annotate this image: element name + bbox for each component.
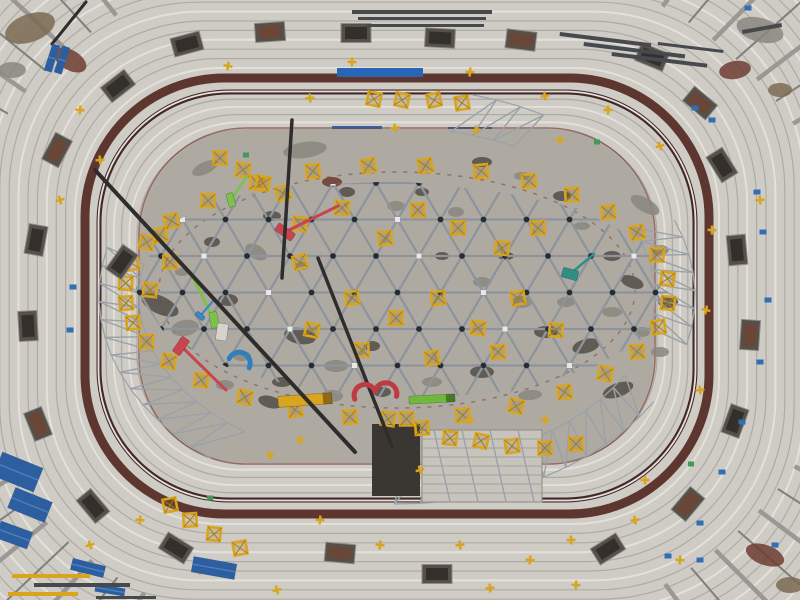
shoring-tower — [237, 390, 252, 405]
frame-node — [288, 327, 293, 332]
ground-patch — [574, 222, 590, 230]
shoring-tower — [292, 254, 307, 269]
frame-node — [481, 290, 486, 295]
shoring-tower — [139, 235, 154, 250]
stadium-aerial-photo — [0, 0, 800, 600]
shoring-tower — [183, 513, 197, 527]
vomitory-opening — [726, 234, 748, 266]
frame-node — [438, 217, 444, 223]
blue-fixture — [665, 554, 672, 559]
frame-node — [503, 327, 508, 332]
shoring-tower — [378, 231, 392, 245]
frame-node — [309, 290, 315, 296]
blue-fixture — [697, 521, 704, 526]
frame-node — [459, 326, 465, 332]
frame-node — [395, 217, 400, 222]
blue-banner — [337, 68, 423, 77]
shoring-tower — [143, 283, 157, 297]
shoring-tower — [119, 296, 133, 310]
steel-beam-bundle — [366, 24, 484, 27]
ground-patch — [448, 207, 464, 217]
shoring-tower — [549, 323, 563, 337]
shoring-tower — [495, 241, 510, 256]
shoring-tower — [411, 203, 424, 216]
shoring-tower — [201, 194, 215, 208]
vomitory-opening — [18, 311, 39, 342]
shoring-tower — [304, 322, 319, 337]
frame-node — [373, 253, 379, 259]
shoring-tower — [343, 410, 357, 424]
green-fixture — [243, 153, 249, 158]
shoring-tower — [425, 351, 440, 366]
blue-fixture — [772, 543, 779, 548]
shoring-tower — [660, 271, 675, 286]
shoring-tower — [491, 345, 505, 359]
shoring-tower — [538, 441, 551, 454]
long-bar — [8, 592, 78, 596]
frame-node — [481, 363, 487, 369]
frame-node — [373, 326, 379, 332]
shoring-tower — [569, 437, 582, 450]
shoring-tower — [431, 291, 445, 305]
shoring-tower — [400, 412, 413, 425]
shoring-tower — [522, 174, 536, 188]
shoring-tower — [471, 321, 486, 336]
blue-fixture — [70, 285, 77, 290]
frame-node — [653, 290, 659, 296]
shoring-tower — [194, 373, 209, 388]
vomitory-opening — [254, 21, 285, 42]
frame-node — [588, 326, 594, 332]
frame-node — [266, 290, 271, 295]
frame-node — [567, 217, 573, 223]
shoring-tower — [126, 316, 140, 330]
frame-node — [180, 290, 186, 296]
frame-node — [223, 217, 229, 223]
shoring-tower — [531, 221, 545, 235]
ground-patch — [602, 307, 622, 317]
shoring-tower — [236, 163, 250, 177]
shoring-tower — [505, 439, 520, 454]
frame-node — [352, 363, 357, 368]
shoring-tower — [650, 248, 663, 261]
shoring-tower — [366, 91, 381, 106]
shoring-tower — [629, 225, 644, 240]
ground-patch — [651, 347, 669, 357]
shoring-tower — [394, 92, 409, 107]
long-bar — [12, 574, 90, 578]
field-slab — [140, 129, 654, 463]
blue-fixture — [745, 6, 752, 11]
frame-node — [524, 217, 530, 223]
vomitory-opening — [425, 28, 456, 49]
frame-node — [545, 253, 551, 259]
shoring-tower — [474, 164, 488, 178]
frame-node — [567, 363, 572, 368]
shoring-tower — [361, 158, 376, 173]
support-truck — [215, 323, 228, 341]
frame-node — [330, 326, 336, 332]
blue-fixture — [757, 360, 764, 365]
vomitory-opening — [505, 29, 537, 52]
frame-node — [201, 326, 207, 332]
shoring-tower — [443, 431, 457, 445]
frame-node — [330, 253, 336, 259]
shoring-tower — [415, 421, 429, 435]
long-bar — [96, 596, 156, 599]
shoring-tower — [306, 164, 320, 178]
tunnel-dark-pit — [372, 424, 420, 496]
shoring-tower — [473, 433, 488, 448]
steel-beam-bundle — [352, 10, 492, 14]
corner-debris — [768, 83, 792, 97]
shoring-tower — [207, 527, 221, 541]
frame-node — [244, 253, 250, 259]
shoring-tower — [510, 290, 525, 305]
frame-node — [416, 326, 422, 332]
shoring-tower — [508, 398, 523, 413]
shoring-tower — [140, 335, 153, 348]
shoring-tower — [214, 152, 227, 165]
frame-node — [395, 290, 401, 296]
shoring-tower — [345, 291, 360, 306]
frame-node — [567, 290, 573, 296]
blue-fixture — [739, 420, 746, 425]
long-bar — [34, 583, 130, 587]
green-fixture — [207, 496, 213, 501]
frame-node — [632, 254, 637, 259]
shoring-tower — [455, 96, 470, 111]
blue-fixture — [760, 230, 767, 235]
shoring-tower — [390, 312, 403, 325]
frame-node — [223, 290, 229, 296]
frame-node — [395, 363, 401, 369]
shoring-tower — [426, 92, 441, 107]
shoring-tower — [601, 205, 615, 219]
shoring-tower — [232, 540, 247, 555]
blue-fixture — [697, 558, 704, 563]
shoring-tower — [557, 385, 572, 400]
shoring-tower — [630, 345, 644, 359]
frame-node — [459, 253, 465, 259]
frame-node — [202, 254, 207, 259]
vomitory-opening — [324, 542, 356, 564]
blue-fixture — [67, 328, 74, 333]
frame-node — [481, 217, 487, 223]
frame-node — [524, 363, 530, 369]
frame-node — [266, 363, 272, 369]
shoring-tower — [255, 175, 270, 190]
frame-node — [610, 290, 616, 296]
green-fixture — [688, 462, 694, 467]
shoring-tower — [565, 188, 579, 202]
steel-beam-bundle — [358, 17, 486, 20]
shoring-tower — [661, 296, 675, 310]
frame-node — [266, 217, 272, 223]
shoring-tower — [598, 366, 614, 382]
frame-node — [417, 254, 422, 259]
blue-fixture — [754, 190, 761, 195]
shoring-tower — [161, 353, 176, 368]
shoring-tower — [452, 222, 465, 235]
blue-fixture — [709, 118, 716, 123]
blue-fixture — [692, 106, 699, 111]
frame-node — [631, 326, 637, 332]
shoring-tower — [651, 320, 666, 335]
vomitory-opening — [422, 565, 452, 584]
frame-node — [309, 363, 315, 369]
screenshot-stage — [0, 0, 800, 600]
blue-fixture — [765, 298, 772, 303]
shoring-tower — [418, 158, 433, 173]
green-fixture — [594, 140, 600, 145]
frame-node — [352, 217, 358, 223]
shoring-tower — [162, 497, 177, 512]
vomitory-opening — [739, 319, 760, 350]
blue-fixture — [719, 470, 726, 475]
